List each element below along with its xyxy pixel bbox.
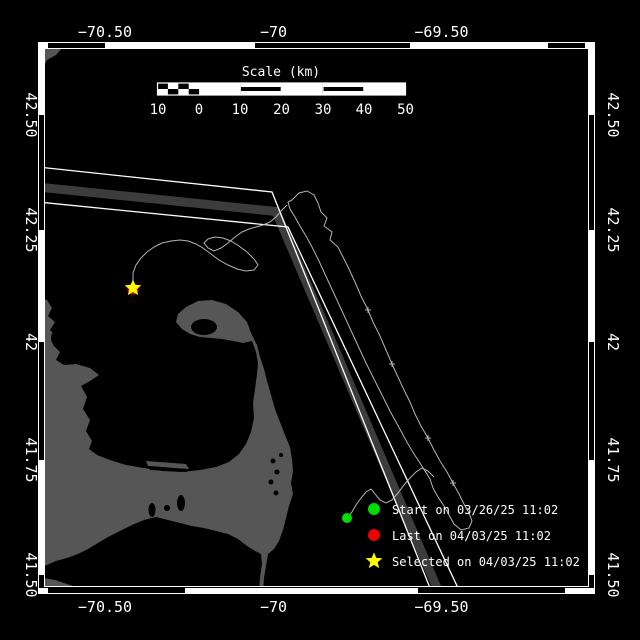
bottom-axis-label: −69.50 (414, 598, 468, 616)
right-axis: 42.50 42.25 42 41.75 41.50 (604, 92, 622, 597)
top-axis: −70.50 −70 −69.50 (78, 23, 469, 41)
right-axis-label: 42.50 (604, 92, 622, 137)
left-axis-label: 42 (22, 333, 40, 351)
top-axis-label: −70.50 (78, 23, 132, 41)
scale-tick: 20 (273, 102, 290, 118)
scale-bar-numbers: 10 0 10 20 30 40 50 (150, 102, 414, 118)
left-axis-label: 41.75 (22, 437, 40, 482)
left-axis-label: 41.50 (22, 552, 40, 597)
legend-start-label: Start on 03/26/25 11:02 (392, 503, 558, 517)
land-cape-cod (38, 296, 293, 592)
right-axis-label: 41.75 (604, 437, 622, 482)
scale-tick: 50 (397, 102, 414, 118)
scale-bar: Scale (km) 10 0 10 20 30 40 50 (150, 65, 414, 118)
scale-tick: 10 (150, 102, 167, 118)
scale-tick: 0 (195, 102, 203, 118)
bank-outline (288, 191, 472, 530)
right-axis-label: 41.50 (604, 552, 622, 597)
legend-yellow-star-icon (366, 552, 383, 568)
legend-red-circle-icon (368, 529, 380, 541)
left-axis: 42.50 42.25 42 41.75 41.50 (22, 92, 40, 597)
legend-last-label: Last on 04/03/25 11:02 (392, 529, 551, 543)
scale-tick: 30 (315, 102, 332, 118)
legend: Start on 03/26/25 11:02 Last on 04/03/25… (366, 503, 580, 569)
top-axis-label: −70 (260, 23, 287, 41)
bottom-axis-label: −70.50 (78, 598, 132, 616)
start-position-marker (342, 513, 352, 523)
drifter-track-map: −70.50 −70 −69.50 −70.50 −70 −69.50 42.5… (0, 0, 640, 640)
legend-selected-label: Selected on 04/03/25 11:02 (392, 555, 580, 569)
map-canvas: −70.50 −70 −69.50 −70.50 −70 −69.50 42.5… (0, 0, 640, 640)
scale-bar-title: Scale (km) (242, 65, 320, 80)
legend-green-circle-icon (368, 503, 380, 515)
right-axis-label: 42 (604, 333, 622, 351)
left-axis-label: 42.50 (22, 92, 40, 137)
scale-bar-graphic (158, 83, 406, 95)
scale-tick: 40 (356, 102, 373, 118)
drifter-track-end-segment (133, 205, 287, 289)
bottom-axis: −70.50 −70 −69.50 (78, 598, 469, 616)
right-axis-label: 42.25 (604, 207, 622, 252)
left-axis-label: 42.25 (22, 207, 40, 252)
scale-tick: 10 (232, 102, 249, 118)
top-axis-label: −69.50 (414, 23, 468, 41)
bottom-axis-label: −70 (260, 598, 287, 616)
